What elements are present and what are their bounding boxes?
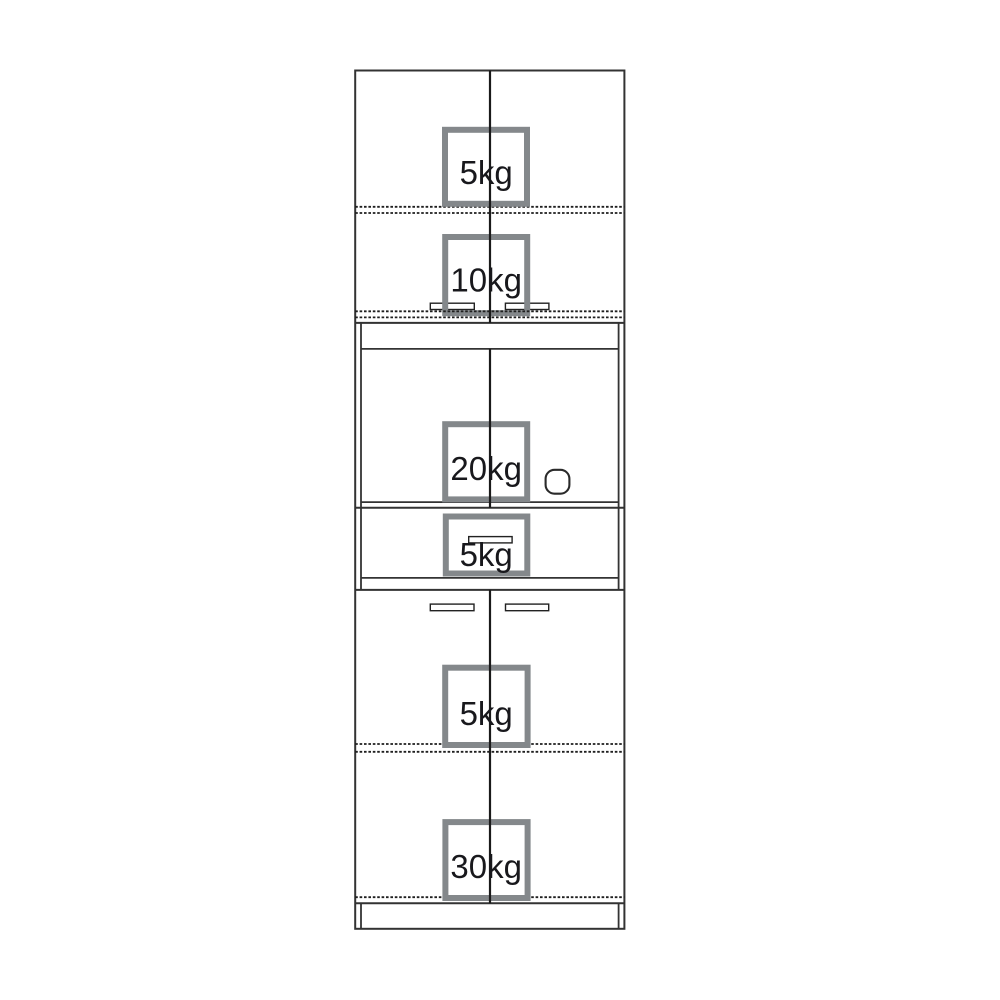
svg-text:5kg: 5kg [460, 695, 513, 732]
svg-text:5kg: 5kg [460, 536, 513, 573]
svg-text:10kg: 10kg [450, 262, 522, 299]
svg-text:5kg: 5kg [460, 154, 513, 191]
svg-text:20kg: 20kg [450, 450, 522, 487]
svg-text:30kg: 30kg [450, 848, 522, 885]
